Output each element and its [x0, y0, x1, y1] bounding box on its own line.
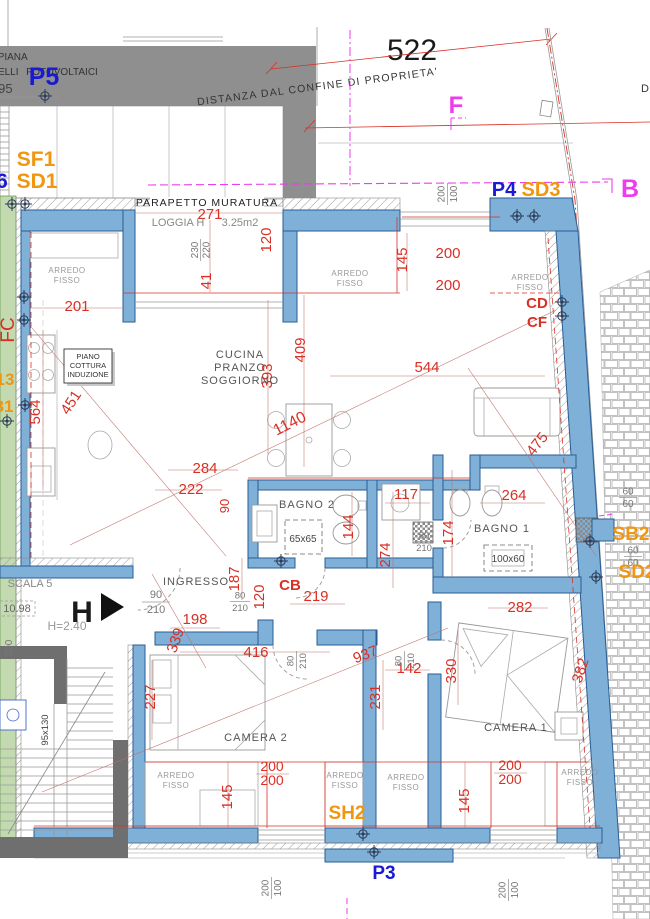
sofa-icon [474, 388, 560, 436]
marker-sh2: SH2 [329, 803, 366, 824]
piano-cottura-box: PIANO COTTURA INDUZIONE [64, 349, 115, 386]
dim-200a: 200 [435, 245, 460, 262]
chair-icon [88, 431, 112, 459]
marker-sd1: SD1 [17, 170, 58, 193]
svg-text:FISSO: FISSO [393, 783, 420, 792]
bidet-icon [450, 490, 470, 516]
fragment-13: 13 [0, 370, 14, 389]
dim-145c: 145 [456, 788, 473, 813]
label-parapetto: PARAPETTO MURATURA [136, 197, 278, 209]
svg-text:200: 200 [498, 881, 509, 898]
window-95x130-label: 95x130 [40, 714, 51, 745]
plan-canvas: URA PIANA NNELLI FOTOVOLTAICI 0.95 P5 52… [0, 0, 650, 919]
fragment-81: 81 [0, 397, 13, 416]
label-camera1: CAMERA 1 [484, 722, 548, 734]
shower-65x65-label: 65x65 [289, 534, 317, 545]
wall-ingresso-top [0, 566, 133, 578]
svg-text:80: 80 [394, 656, 405, 667]
door-dim-90-210: 90 210 [142, 589, 170, 616]
svg-text:60: 60 [627, 546, 639, 557]
wall-top-mid [283, 210, 400, 231]
dim-409: 409 [292, 337, 309, 362]
marker-p3: P3 [372, 863, 395, 884]
svg-text:200: 200 [437, 185, 448, 202]
marker-b: B [621, 175, 639, 203]
dim-200-scala: 200 [4, 639, 15, 656]
marker-sd2: SD2 [619, 562, 650, 583]
dim-174: 174 [440, 520, 457, 545]
svg-text:80: 80 [286, 656, 297, 667]
label-arredo-2: ARREDO [331, 269, 368, 278]
svg-text:210: 210 [298, 653, 309, 669]
label-arredo-7: ARREDO [561, 768, 598, 777]
svg-text:FISSO: FISSO [337, 279, 364, 288]
dimension-lines [30, 213, 596, 828]
wall-bagni-top [248, 480, 480, 490]
green-strip [0, 196, 16, 856]
marker-sf1: SF1 [17, 148, 56, 171]
label-loggia: LOGGIA H [152, 217, 205, 229]
svg-text:230: 230 [190, 241, 201, 258]
label-arredo-4: ARREDO [157, 771, 194, 780]
dim-264: 264 [501, 487, 526, 504]
window-dim-200-100-b1: 200 100 [261, 877, 285, 899]
dim-416: 416 [243, 644, 268, 661]
label-arredo-5: ARREDO [326, 771, 363, 780]
section-marker-h: H [71, 596, 93, 629]
dim-201: 201 [64, 298, 89, 315]
marker-cb: CB [279, 577, 301, 594]
dim-145a: 145 [394, 247, 411, 272]
wall-camera2-left [133, 645, 145, 828]
dim-282: 282 [507, 599, 532, 616]
svg-text:220: 220 [202, 241, 213, 258]
marker-fc: FC [0, 317, 19, 342]
svg-text:200: 200 [261, 879, 272, 896]
svg-text:FISSO: FISSO [54, 276, 81, 285]
label-arredo-6: ARREDO [387, 773, 424, 782]
label-cucina: CUCINA [216, 349, 264, 361]
wall-bottom-mid [325, 828, 490, 843]
dim-41: 41 [198, 273, 215, 290]
svg-text:90: 90 [150, 589, 162, 601]
label-ingresso: INGRESSO [163, 576, 229, 588]
svg-text:PIANO: PIANO [76, 352, 100, 361]
bed-camera1-icon [446, 623, 568, 732]
marker-cf: CF [527, 314, 547, 331]
marker-6: 6 [0, 170, 8, 193]
dim-219: 219 [303, 588, 328, 605]
svg-text:100: 100 [273, 879, 284, 896]
label-arredo-3: ARREDO [511, 273, 548, 282]
dim-198: 198 [182, 611, 207, 628]
section-arrow-icon [101, 593, 124, 621]
svg-text:60: 60 [622, 487, 634, 498]
label-arredo-1: ARREDO [48, 266, 85, 275]
dim-145b: 145 [219, 784, 236, 809]
svg-text:210: 210 [232, 603, 248, 614]
distance-value: 522 [387, 34, 437, 67]
label-bagno2: BAGNO 2 [279, 499, 335, 511]
svg-text:80: 80 [235, 591, 246, 602]
window-dim-200-100-top: 200 100 [437, 183, 461, 205]
dim-117: 117 [394, 486, 418, 503]
marker-sb2: SB2 [613, 524, 650, 545]
dim-451: 451 [57, 387, 85, 417]
dim-120a: 120 [258, 227, 275, 252]
dim-222: 222 [178, 481, 203, 498]
floor-plan-drawing: URA PIANA NNELLI FOTOVOLTAICI 0.95 P5 52… [0, 0, 650, 919]
wall-top-left [21, 210, 135, 231]
window-95x130-icon [0, 700, 26, 730]
marker-p5: P5 [29, 63, 60, 91]
dim-231: 231 [367, 684, 384, 709]
dim-200b: 200 [435, 277, 460, 294]
svg-text:SOGGIORNO: SOGGIORNO [201, 375, 279, 387]
shower-tray-icon [252, 505, 277, 542]
svg-text:100: 100 [510, 881, 521, 898]
roof-text-pannelli: NNELLI [0, 67, 19, 78]
svg-text:60: 60 [622, 499, 634, 510]
svg-text:210: 210 [406, 653, 417, 669]
dim-120b: 120 [251, 584, 268, 609]
svg-text:100: 100 [449, 185, 460, 202]
table-100x60-label: 100x60 [492, 554, 525, 565]
roof-text-piana: URA PIANA [0, 52, 28, 63]
svg-text:210: 210 [147, 604, 165, 616]
marker-cd: CD [526, 295, 548, 312]
svg-text:FISSO: FISSO [567, 778, 594, 787]
dim-90: 90 [217, 499, 232, 513]
svg-text:FISSO: FISSO [517, 283, 544, 292]
window-dim-200-100-b2: 200 100 [498, 879, 522, 901]
svg-text:FISSO: FISSO [332, 781, 359, 790]
wall-bagno1-bottom [433, 577, 581, 593]
dim-200d: 200 [260, 772, 284, 788]
distance-d-partial: D [641, 83, 649, 95]
wall-camera1-left [428, 674, 441, 828]
dim-544: 544 [414, 359, 439, 376]
label-camera2: CAMERA 2 [224, 732, 288, 744]
label-loggia-area: 3.25m2 [222, 217, 259, 229]
dim-200f: 200 [498, 771, 522, 787]
label-bagno1: BAGNO 1 [474, 523, 530, 535]
wall-p3-block [325, 849, 453, 862]
svg-text:PRANZO: PRANZO [214, 362, 266, 374]
dim-564: 564 [27, 399, 44, 424]
dim-274: 274 [377, 542, 394, 567]
svg-text:80: 80 [419, 531, 430, 542]
svg-text:INDUZIONE: INDUZIONE [67, 370, 108, 379]
wall-bottom-right [557, 828, 602, 843]
svg-text:COTTURA: COTTURA [70, 361, 106, 370]
svg-text:FISSO: FISSO [163, 781, 190, 790]
nightstand-icon [555, 712, 583, 740]
dim-144: 144 [340, 514, 357, 539]
svg-text:210: 210 [416, 543, 432, 554]
marker-f: F [449, 92, 464, 119]
scala-quota: 10.98 [3, 603, 31, 615]
washbasin-icon [333, 495, 359, 517]
dim-330: 330 [443, 658, 460, 683]
dim-284: 284 [192, 460, 217, 477]
roof-quota: 0.95 [0, 81, 13, 96]
dim-227: 227 [142, 684, 159, 709]
scala-label: SCALA 5 [8, 578, 53, 590]
